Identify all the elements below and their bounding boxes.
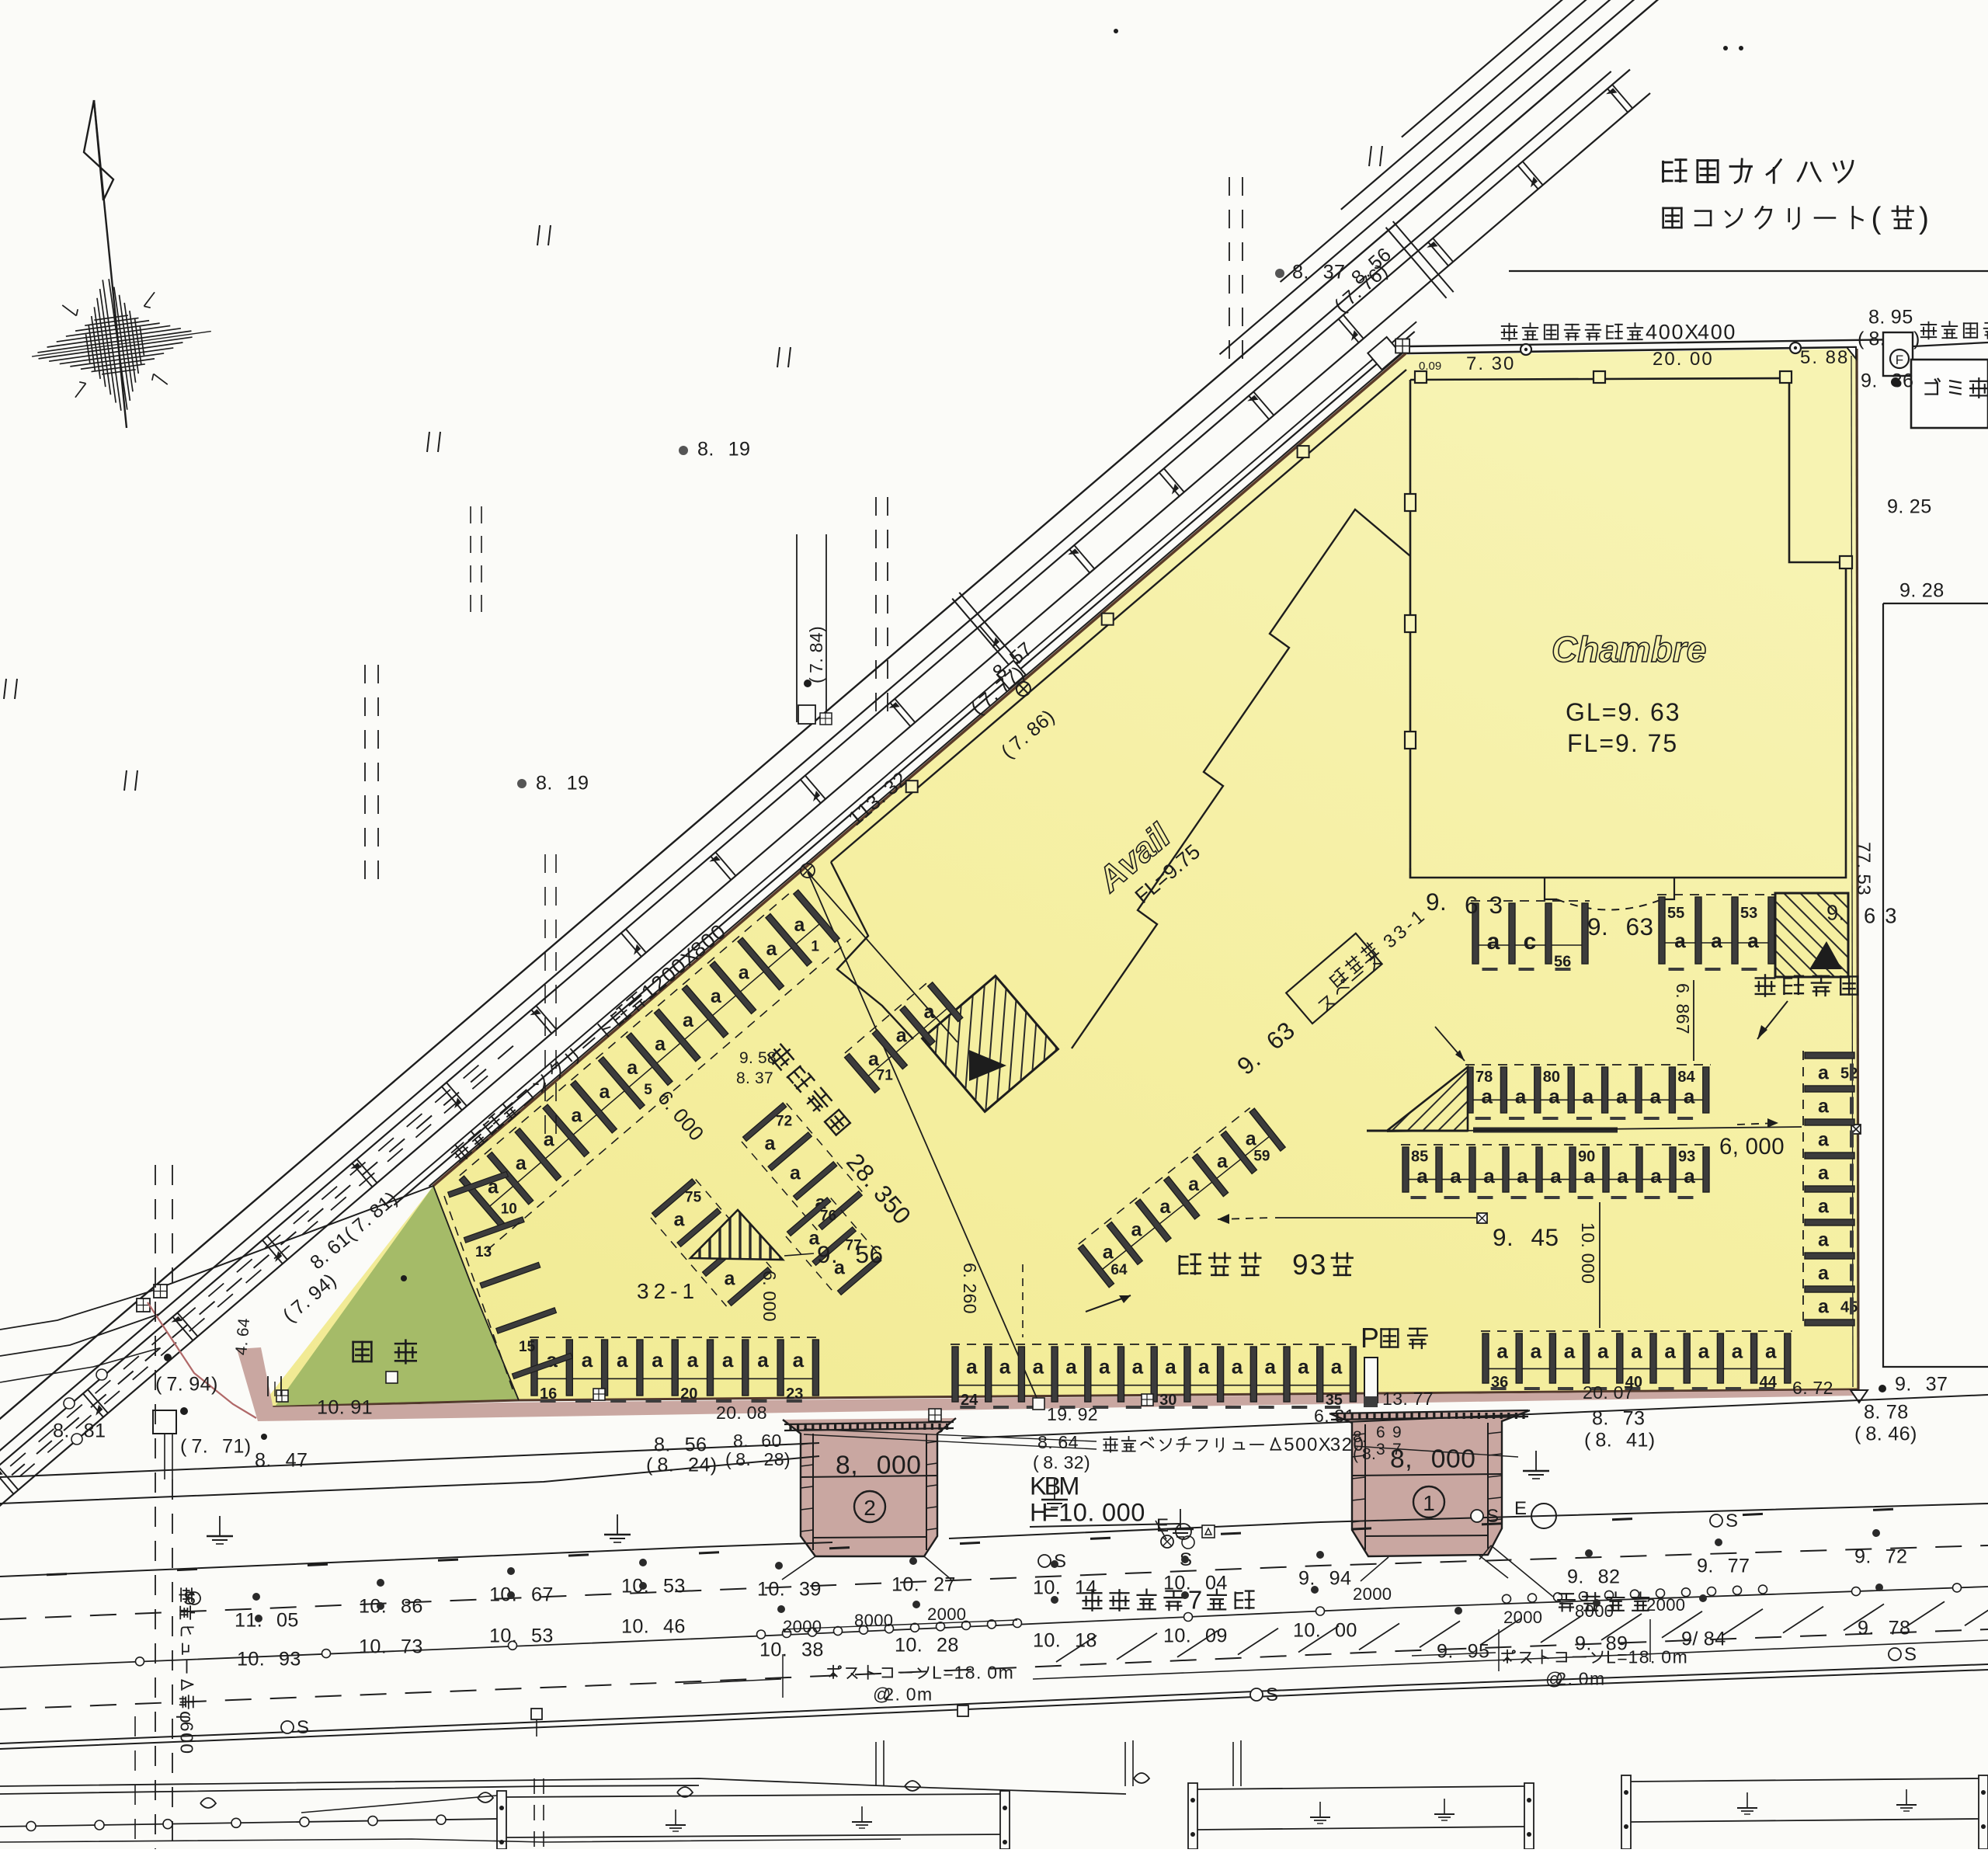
svg-text:0: 0 xyxy=(947,1604,956,1624)
svg-text:5: 5 xyxy=(1920,496,1931,518)
svg-text:0: 0 xyxy=(902,1574,913,1596)
svg-text:8: 8 xyxy=(1639,1646,1649,1667)
svg-text:6: 6 xyxy=(870,1240,884,1268)
svg-text:8: 8 xyxy=(1043,1452,1053,1472)
svg-text:a: a xyxy=(1765,1339,1777,1362)
svg-text:.: . xyxy=(1898,496,1903,518)
svg-text:8: 8 xyxy=(965,1662,975,1682)
svg-text:5. 88: 5. 88 xyxy=(1800,347,1849,368)
svg-text:6: 6 xyxy=(1899,1424,1910,1445)
svg-text:7: 7 xyxy=(1413,1389,1423,1409)
svg-text:a: a xyxy=(1818,1263,1830,1285)
svg-text:13: 13 xyxy=(475,1244,492,1260)
svg-text:a: a xyxy=(923,1001,935,1023)
svg-text:.: . xyxy=(1440,888,1447,916)
svg-text:P: P xyxy=(1361,1323,1379,1354)
svg-text:.: . xyxy=(669,1455,674,1476)
svg-text:.: . xyxy=(1448,1641,1453,1663)
svg-text:a: a xyxy=(1481,1085,1493,1108)
svg-text:4: 4 xyxy=(286,1450,297,1472)
svg-text:8: 8 xyxy=(1086,1630,1097,1652)
svg-text:6: 6 xyxy=(761,1431,771,1451)
svg-text:0: 0 xyxy=(747,1403,757,1423)
svg-text:1: 1 xyxy=(1033,1577,1044,1599)
svg-text:a: a xyxy=(1416,1164,1428,1187)
svg-text:.: . xyxy=(339,1397,345,1419)
svg-text:a: a xyxy=(1531,1339,1542,1362)
svg-text:(: ( xyxy=(1353,1445,1358,1463)
svg-text:.: . xyxy=(381,1636,387,1658)
svg-text:8: 8 xyxy=(1598,1566,1609,1588)
svg-text:.: . xyxy=(780,1579,785,1601)
svg-text:1: 1 xyxy=(1293,1620,1304,1642)
svg-text:0: 0 xyxy=(1676,1595,1685,1615)
svg-text:a: a xyxy=(1698,1339,1710,1362)
svg-text:a: a xyxy=(1617,1164,1628,1187)
svg-text:1: 1 xyxy=(362,1397,373,1419)
svg-text:9: 9 xyxy=(1329,1568,1340,1590)
svg-text:0: 0 xyxy=(1304,1620,1315,1642)
svg-text:(: ( xyxy=(725,1449,732,1469)
svg-text:8: 8 xyxy=(757,1403,767,1423)
svg-text:4: 4 xyxy=(1646,321,1657,344)
svg-text:a: a xyxy=(627,1057,638,1079)
svg-text:1: 1 xyxy=(1628,1646,1639,1667)
svg-text:7: 7 xyxy=(222,1436,233,1458)
svg-text:9: 9 xyxy=(739,439,750,461)
svg-text:): ) xyxy=(784,1449,791,1469)
svg-text:X: X xyxy=(1319,1434,1331,1455)
svg-text:4: 4 xyxy=(1715,1629,1726,1650)
svg-text:a: a xyxy=(1496,1339,1508,1362)
svg-text:a: a xyxy=(999,1354,1011,1378)
svg-text:71: 71 xyxy=(877,1068,894,1084)
svg-text:.: . xyxy=(266,1450,271,1472)
svg-text:9: 9 xyxy=(1567,1566,1578,1588)
svg-text:a: a xyxy=(1550,1164,1562,1187)
svg-text:.: . xyxy=(759,1281,780,1285)
svg-text:9: 9 xyxy=(1697,1556,1708,1577)
svg-text:.: . xyxy=(1055,1577,1061,1599)
svg-text:a: a xyxy=(1583,1085,1594,1108)
svg-text:.: . xyxy=(1673,993,1693,998)
svg-text:.: . xyxy=(960,1273,980,1278)
svg-text:8: 8 xyxy=(812,1639,823,1661)
svg-text:6: 6 xyxy=(1673,1014,1693,1024)
svg-text:0: 0 xyxy=(1117,1499,1131,1527)
svg-text:1: 1 xyxy=(1033,1630,1044,1652)
svg-text:(: ( xyxy=(1858,329,1865,350)
svg-text:9: 9 xyxy=(279,1649,290,1670)
svg-text:2: 2 xyxy=(1503,1608,1513,1627)
svg-text:3: 3 xyxy=(1323,262,1334,283)
svg-text:.: . xyxy=(917,1635,923,1657)
svg-text:5: 5 xyxy=(1284,1434,1294,1455)
svg-text:8: 8 xyxy=(697,439,708,461)
svg-text:.: . xyxy=(547,773,552,794)
svg-text:a: a xyxy=(1188,1173,1200,1195)
svg-text:5: 5 xyxy=(1479,1641,1489,1663)
svg-text:a: a xyxy=(1664,1339,1676,1362)
svg-text:7: 7 xyxy=(1423,1389,1434,1409)
svg-text:a: a xyxy=(652,1348,663,1371)
svg-text:.: . xyxy=(64,1420,69,1442)
svg-text:0: 0 xyxy=(1711,321,1722,344)
svg-text:): ) xyxy=(806,626,826,632)
svg-text:FL=9. 75: FL=9. 75 xyxy=(1567,729,1678,757)
svg-text:0: 0 xyxy=(726,1403,736,1423)
svg-text:.: . xyxy=(1910,580,1916,602)
svg-text:.: . xyxy=(178,1374,183,1396)
svg-text:=: = xyxy=(1044,1499,1059,1527)
svg-text:7: 7 xyxy=(1812,1378,1823,1398)
svg-text:1: 1 xyxy=(954,1662,964,1682)
svg-text:.: . xyxy=(203,1436,208,1458)
svg-text:9: 9 xyxy=(1854,1546,1865,1568)
svg-text:9: 9 xyxy=(1292,1249,1309,1281)
svg-text:a: a xyxy=(1616,1085,1628,1108)
svg-text:8: 8 xyxy=(1864,1402,1875,1424)
svg-text:7: 7 xyxy=(1885,1546,1896,1568)
svg-text:.: . xyxy=(1607,1430,1612,1451)
svg-text:1: 1 xyxy=(621,1576,632,1597)
svg-text:8: 8 xyxy=(84,1420,95,1442)
svg-text:6: 6 xyxy=(1376,1424,1385,1441)
svg-text:): ) xyxy=(711,1455,717,1476)
svg-text:a: a xyxy=(674,1209,686,1231)
svg-text:2: 2 xyxy=(1342,1434,1352,1455)
svg-text:.: . xyxy=(1875,1402,1880,1424)
svg-text:0: 0 xyxy=(1363,1584,1372,1604)
svg-text:.: . xyxy=(1708,1556,1713,1577)
svg-text:0: 0 xyxy=(276,1610,287,1632)
svg-text:a: a xyxy=(1684,1164,1695,1187)
svg-text:6: 6 xyxy=(1058,1432,1068,1452)
svg-text:6: 6 xyxy=(1792,1378,1802,1398)
svg-text:0: 0 xyxy=(906,1451,921,1480)
svg-text:9: 9 xyxy=(1891,307,1902,329)
svg-text:9: 9 xyxy=(817,1240,831,1268)
svg-text:0: 0 xyxy=(770,1639,781,1661)
svg-text:5: 5 xyxy=(685,1434,696,1456)
svg-text:.: . xyxy=(1053,1452,1058,1472)
svg-text:9: 9 xyxy=(1437,1641,1448,1663)
svg-text:8: 8 xyxy=(1353,1428,1362,1446)
svg-text:a: a xyxy=(516,1152,527,1174)
svg-text:5: 5 xyxy=(663,1576,674,1597)
svg-text:2: 2 xyxy=(1088,1404,1098,1424)
svg-text:.: . xyxy=(736,1403,741,1423)
svg-text:0: 0 xyxy=(759,1312,780,1322)
svg-text:1: 1 xyxy=(237,1649,248,1670)
svg-text:0: 0 xyxy=(1723,321,1735,344)
svg-text:7: 7 xyxy=(1739,1556,1750,1577)
svg-text:a: a xyxy=(1264,1354,1276,1378)
svg-text:9: 9 xyxy=(1899,580,1910,602)
svg-text:3: 3 xyxy=(801,1639,812,1661)
svg-text:7: 7 xyxy=(1392,1441,1402,1458)
svg-text:L: L xyxy=(932,1662,942,1682)
svg-text:0: 0 xyxy=(1205,1625,1216,1647)
svg-text:.: . xyxy=(1586,1633,1591,1655)
svg-text:0: 0 xyxy=(793,1617,802,1636)
svg-text:S: S xyxy=(297,1717,309,1738)
svg-text:1: 1 xyxy=(1382,1389,1392,1409)
svg-text:): ) xyxy=(1084,1452,1090,1472)
svg-text:0: 0 xyxy=(1746,1134,1758,1159)
svg-text:0: 0 xyxy=(1604,1601,1614,1621)
svg-text:a: a xyxy=(896,1025,908,1047)
svg-text:1: 1 xyxy=(95,1420,106,1442)
svg-text:6: 6 xyxy=(1626,913,1640,940)
svg-text:/: / xyxy=(1692,1629,1698,1650)
svg-text:4: 4 xyxy=(1888,1424,1899,1445)
svg-text:4: 4 xyxy=(1216,1573,1227,1594)
svg-text:84: 84 xyxy=(1677,1069,1695,1086)
svg-text:a: a xyxy=(1711,929,1722,952)
svg-text:a: a xyxy=(1649,1085,1661,1108)
svg-text:7: 7 xyxy=(297,1450,308,1472)
svg-text:0: 0 xyxy=(1044,1630,1055,1652)
svg-text:a: a xyxy=(1298,1354,1309,1378)
svg-text:.: . xyxy=(1578,1566,1583,1588)
svg-text:1: 1 xyxy=(359,1596,370,1618)
svg-text:0: 0 xyxy=(957,1604,966,1624)
svg-text:9: 9 xyxy=(1298,1568,1309,1590)
svg-text:5: 5 xyxy=(287,1610,298,1632)
svg-text:1: 1 xyxy=(567,773,578,794)
svg-text:6: 6 xyxy=(1903,370,1913,392)
svg-text:.: . xyxy=(1186,1573,1191,1594)
svg-text:6: 6 xyxy=(1673,983,1693,993)
svg-text:.: . xyxy=(1853,864,1874,869)
svg-text:a: a xyxy=(1674,929,1686,952)
svg-text:0: 0 xyxy=(1579,1668,1589,1688)
svg-text:.: . xyxy=(1507,1223,1514,1251)
svg-text:a: a xyxy=(757,1348,769,1371)
svg-text:7: 7 xyxy=(764,1069,773,1087)
svg-text:X: X xyxy=(1684,321,1698,344)
svg-text:a: a xyxy=(1103,1242,1114,1264)
svg-text:.: . xyxy=(1402,1389,1407,1409)
svg-text:a: a xyxy=(687,1348,699,1371)
svg-text:a: a xyxy=(1198,1354,1210,1378)
svg-text:0: 0 xyxy=(1758,1134,1771,1159)
svg-text:7: 7 xyxy=(1853,853,1874,863)
svg-text:=: = xyxy=(943,1662,953,1682)
svg-text:8: 8 xyxy=(1595,1430,1606,1451)
svg-text:E: E xyxy=(1156,1515,1169,1536)
svg-text:0: 0 xyxy=(1044,1577,1055,1599)
svg-text:0: 0 xyxy=(905,1635,916,1657)
svg-text:.: . xyxy=(1603,1408,1608,1430)
svg-text:8: 8 xyxy=(255,1450,266,1472)
svg-text:1: 1 xyxy=(359,1636,370,1658)
svg-text:m: m xyxy=(1673,1646,1687,1667)
svg-text:6: 6 xyxy=(960,1294,980,1304)
svg-text:7: 7 xyxy=(944,1574,955,1596)
svg-text:.: . xyxy=(1578,1243,1598,1247)
svg-text:0: 0 xyxy=(500,1625,511,1647)
svg-text:8: 8 xyxy=(947,1635,958,1657)
svg-text:a: a xyxy=(793,1348,805,1371)
svg-text:0: 0 xyxy=(1514,1608,1523,1627)
svg-text:.: . xyxy=(1315,1620,1321,1642)
svg-text:6: 6 xyxy=(1465,891,1479,919)
svg-text:0: 0 xyxy=(772,1431,782,1451)
svg-text:9: 9 xyxy=(1078,1404,1088,1424)
svg-text:(: ( xyxy=(180,1436,187,1458)
svg-text:0: 0 xyxy=(1174,1625,1185,1647)
svg-text:7: 7 xyxy=(1728,1556,1739,1577)
svg-text:9: 9 xyxy=(1895,1374,1906,1396)
svg-text:(: ( xyxy=(1033,1452,1039,1472)
svg-text:5: 5 xyxy=(1545,1223,1559,1251)
svg-text:Chambre: Chambre xyxy=(1552,629,1706,669)
svg-text:=: = xyxy=(1617,1646,1627,1667)
svg-text:8: 8 xyxy=(1704,1629,1715,1650)
svg-text:7: 7 xyxy=(1889,1618,1899,1639)
svg-text:S: S xyxy=(1726,1511,1738,1531)
svg-text:a: a xyxy=(1818,1096,1830,1118)
svg-text:0: 0 xyxy=(1073,1499,1087,1527)
svg-text:4: 4 xyxy=(1531,1223,1545,1251)
svg-text:8: 8 xyxy=(1037,1432,1048,1452)
svg-text:80: 80 xyxy=(1543,1069,1560,1086)
svg-text:a: a xyxy=(1564,1339,1576,1362)
svg-text:45: 45 xyxy=(1840,1299,1858,1316)
svg-text:a: a xyxy=(1331,1354,1343,1378)
svg-text:8: 8 xyxy=(1292,262,1303,283)
svg-text:9: 9 xyxy=(1392,1424,1402,1441)
svg-text:8: 8 xyxy=(654,1434,665,1456)
svg-text:2: 2 xyxy=(960,1283,980,1293)
svg-text:7: 7 xyxy=(542,1584,553,1606)
svg-text:a: a xyxy=(1732,1339,1743,1362)
svg-text:a: a xyxy=(599,1081,610,1103)
svg-text:9: 9 xyxy=(1587,913,1601,940)
svg-text:a: a xyxy=(572,1105,583,1127)
svg-text:1: 1 xyxy=(1423,1491,1435,1515)
svg-text:(: ( xyxy=(1872,202,1882,235)
svg-text:.: . xyxy=(1879,307,1885,329)
svg-text:53: 53 xyxy=(1740,905,1757,922)
svg-text:1: 1 xyxy=(759,1639,770,1661)
svg-text:0: 0 xyxy=(1131,1499,1145,1527)
svg-text:6: 6 xyxy=(696,1434,707,1456)
svg-text:0: 0 xyxy=(1431,1445,1446,1474)
svg-text:9: 9 xyxy=(1858,1618,1868,1639)
svg-text:5: 5 xyxy=(644,1082,652,1098)
svg-text:0: 0 xyxy=(987,1662,997,1682)
svg-text:(: ( xyxy=(155,1374,162,1396)
svg-text:9: 9 xyxy=(1887,496,1898,518)
svg-text:6: 6 xyxy=(759,1271,780,1281)
svg-text:.: . xyxy=(259,1649,265,1670)
svg-text:0: 0 xyxy=(874,1611,883,1630)
svg-text:a: a xyxy=(766,938,778,960)
svg-text:5: 5 xyxy=(531,1625,542,1647)
svg-text:.: . xyxy=(1303,262,1309,283)
svg-text:6: 6 xyxy=(674,1616,685,1638)
svg-text:59: 59 xyxy=(1253,1149,1270,1165)
svg-text:75: 75 xyxy=(685,1190,702,1206)
svg-text:0: 0 xyxy=(1578,1264,1598,1274)
svg-text:7: 7 xyxy=(806,663,826,673)
svg-text:4: 4 xyxy=(1698,321,1709,344)
svg-text:3: 3 xyxy=(1892,370,1903,392)
svg-text:a: a xyxy=(1747,929,1759,952)
svg-text:a: a xyxy=(1487,929,1500,954)
svg-text:4: 4 xyxy=(699,1455,710,1476)
svg-text:2: 2 xyxy=(1896,1546,1907,1568)
svg-text:.: . xyxy=(745,1449,750,1469)
svg-text:0.09: 0.09 xyxy=(1419,360,1441,373)
svg-text:m: m xyxy=(999,1662,1013,1682)
svg-text:.: . xyxy=(1603,1382,1607,1403)
svg-text:55: 55 xyxy=(1667,905,1684,922)
svg-text:0: 0 xyxy=(1593,1382,1603,1403)
svg-text:7: 7 xyxy=(166,1374,177,1396)
svg-text:3: 3 xyxy=(542,1625,553,1647)
svg-text:9: 9 xyxy=(1493,1223,1507,1251)
svg-text:.: . xyxy=(1087,1499,1094,1527)
svg-text:8: 8 xyxy=(1592,1408,1603,1430)
svg-text:1: 1 xyxy=(489,1584,500,1606)
svg-text:9: 9 xyxy=(1468,1641,1479,1663)
svg-text:78: 78 xyxy=(1475,1069,1493,1086)
svg-text:.: . xyxy=(1568,1668,1573,1688)
svg-text:8: 8 xyxy=(1897,1402,1908,1424)
svg-text:.: . xyxy=(1186,1625,1191,1647)
svg-text:0: 0 xyxy=(1461,1445,1475,1474)
svg-text:0: 0 xyxy=(1578,1232,1598,1243)
svg-text:0: 0 xyxy=(632,1616,643,1638)
svg-text:0: 0 xyxy=(937,1604,947,1624)
svg-text:4: 4 xyxy=(806,632,826,642)
svg-text:a: a xyxy=(1065,1354,1077,1378)
svg-text:2: 2 xyxy=(1074,1452,1084,1472)
svg-text:(: ( xyxy=(646,1455,653,1476)
svg-text:8: 8 xyxy=(1899,1618,1910,1639)
svg-text:2: 2 xyxy=(688,1455,699,1476)
svg-text:.: . xyxy=(1055,1630,1061,1652)
svg-text:9: 9 xyxy=(1575,1633,1586,1655)
svg-text:0: 0 xyxy=(1523,1608,1532,1627)
svg-text:a: a xyxy=(1818,1163,1830,1184)
svg-text:.: . xyxy=(745,1069,750,1087)
svg-text:a: a xyxy=(765,1133,777,1155)
svg-text:8: 8 xyxy=(1673,1003,1693,1013)
svg-text:,: , xyxy=(1733,1134,1739,1159)
svg-text:2: 2 xyxy=(1556,1668,1566,1688)
svg-text:3: 3 xyxy=(1853,885,1874,895)
svg-text:0: 0 xyxy=(177,1733,197,1743)
svg-text:0: 0 xyxy=(1578,1253,1598,1264)
svg-text:2: 2 xyxy=(1353,1584,1362,1604)
svg-text:a: a xyxy=(655,1034,666,1055)
svg-text:8: 8 xyxy=(401,1596,412,1618)
svg-text:2: 2 xyxy=(884,1684,894,1704)
svg-text:4: 4 xyxy=(235,1317,253,1328)
svg-text:a: a xyxy=(1818,1196,1830,1218)
svg-text:,: , xyxy=(850,1451,857,1480)
svg-text:8: 8 xyxy=(536,773,547,794)
svg-text:20. 00: 20. 00 xyxy=(1653,349,1714,370)
svg-text:0: 0 xyxy=(891,1451,906,1480)
svg-text:4: 4 xyxy=(1340,1568,1351,1590)
svg-text:76: 76 xyxy=(820,1208,836,1225)
